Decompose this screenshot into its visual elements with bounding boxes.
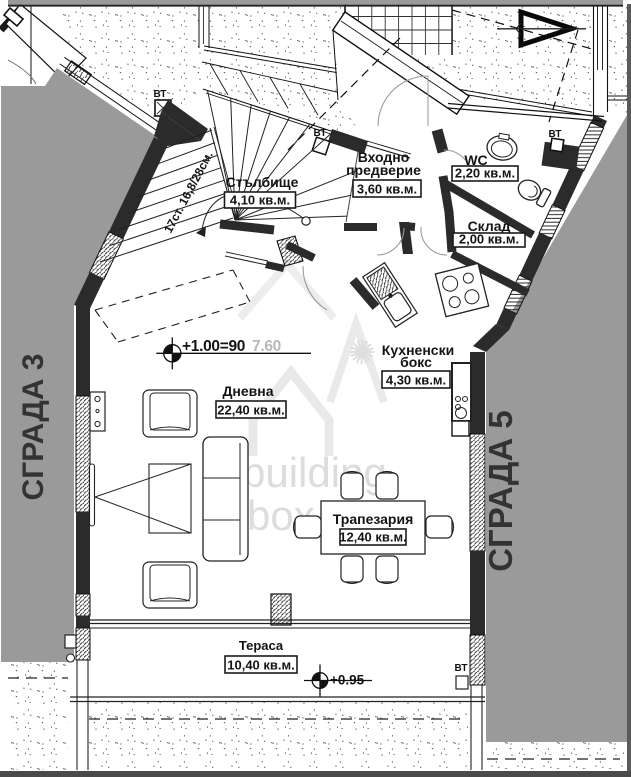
svg-text:7.60: 7.60 bbox=[252, 338, 281, 355]
svg-text:2,00 кв.м.: 2,00 кв.м. bbox=[459, 232, 519, 247]
svg-text:ВТ: ВТ bbox=[549, 129, 562, 140]
svg-text:СГРАДА 5: СГРАДА 5 bbox=[482, 410, 519, 572]
svg-text:4,30 кв.м.: 4,30 кв.м. bbox=[386, 373, 446, 388]
svg-text:building: building bbox=[242, 449, 387, 496]
svg-text:предверие: предверие bbox=[346, 162, 421, 178]
svg-text:4,10 кв.м.: 4,10 кв.м. bbox=[230, 193, 290, 208]
svg-text:3,60 кв.м.: 3,60 кв.м. bbox=[357, 182, 417, 197]
svg-text:ВТ: ВТ bbox=[455, 663, 468, 674]
svg-text:Трапезария: Трапезария bbox=[333, 511, 414, 527]
svg-text:22,40 кв.м.: 22,40 кв.м. bbox=[217, 403, 284, 418]
svg-text:10,40 кв.м.: 10,40 кв.м. bbox=[227, 658, 294, 673]
svg-text:Дневна: Дневна bbox=[222, 383, 273, 399]
svg-text:бокс: бокс bbox=[400, 354, 432, 370]
svg-text:+1.00=90: +1.00=90 bbox=[182, 338, 245, 355]
svg-text:Стълбище: Стълбище bbox=[226, 174, 299, 190]
svg-text:+0.95: +0.95 bbox=[330, 673, 365, 688]
svg-text:ВТ: ВТ bbox=[314, 128, 327, 139]
svg-text:12,40 кв.м.: 12,40 кв.м. bbox=[339, 530, 406, 545]
svg-text:2,20 кв.м.: 2,20 кв.м. bbox=[455, 166, 515, 181]
svg-text:ВТ: ВТ bbox=[154, 89, 167, 100]
svg-text:Тераса: Тераса bbox=[239, 638, 284, 653]
svg-text:СГРАДА 3: СГРАДА 3 bbox=[17, 354, 50, 501]
